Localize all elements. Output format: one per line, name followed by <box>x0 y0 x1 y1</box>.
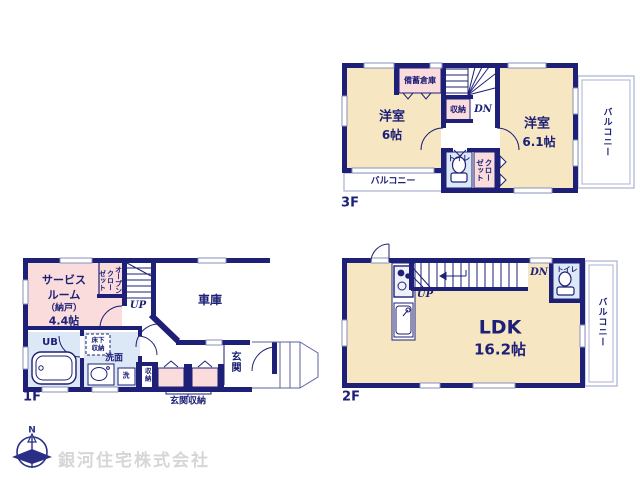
service-room-line3: （納戸） <box>46 305 82 314</box>
floor-plan-page: 洋室 6帖 洋室 6.1帖 備蓄倉庫 収納 DN トイレ クローゼット バルコニ… <box>0 0 640 480</box>
ldk-size-label: 16.2帖 <box>474 343 526 358</box>
ub-label: UB <box>42 338 58 348</box>
floor-label-3f: 3F <box>341 197 359 210</box>
toilet-label-2f: トイレ <box>557 267 578 274</box>
service-room-line1: サービス <box>42 275 86 286</box>
entry-storage-2 <box>192 368 218 387</box>
toilet-label-3f: トイレ <box>448 154 471 162</box>
senmen-label: 洗面 <box>105 355 123 364</box>
genkan-shunou-label: 玄関収納 <box>170 398 206 407</box>
ldk-name-label: LDK <box>479 319 522 338</box>
genkan-label: 玄関 <box>229 351 239 373</box>
company-watermark: 銀河住宅株式会社 <box>58 446 210 471</box>
service-room-line4: 4.4帖 <box>49 316 80 327</box>
up-label-1f: UP <box>130 301 146 311</box>
shunou-label-3f: 収納 <box>450 106 466 114</box>
bathtub-icon <box>32 352 76 384</box>
laundry-label: 洗 <box>123 373 130 380</box>
washbasin-icon <box>88 364 114 385</box>
balcony-label-2f: バルコニー <box>597 297 606 347</box>
room1-size-3f: 6帖 <box>382 129 402 141</box>
floor-label-2f: 2F <box>342 391 360 404</box>
service-room-line2: ルーム <box>48 290 81 301</box>
underfloor-line2: 収納 <box>92 345 105 352</box>
open-closet-label: オープンクローゼット <box>99 266 122 294</box>
up-label-2f: UP <box>417 290 433 300</box>
room2-size-3f: 6.1帖 <box>522 136 555 148</box>
underfloor-line1: 床下 <box>92 337 105 344</box>
dn-label-3f: DN <box>474 105 492 115</box>
shunou-label-1f: 収納 <box>144 368 151 383</box>
garage-diagonal-wall <box>151 315 178 341</box>
garage-label: 車庫 <box>198 294 222 306</box>
floor-plan-drawing <box>0 0 640 480</box>
compass-n-label: N <box>28 427 36 436</box>
dn-label-2f: DN <box>530 268 548 278</box>
stairs-1f <box>127 263 151 298</box>
entrance-steps <box>252 342 318 388</box>
room2-name-3f: 洋室 <box>524 118 550 131</box>
compass-north-icon <box>12 434 52 468</box>
kitchen-sink-icon <box>394 303 413 337</box>
balcony-bottom-label-3f: バルコニー <box>371 178 416 187</box>
balcony-right-label-3f: バルコニー <box>602 107 611 157</box>
closet-label-3f: クローゼット <box>476 159 492 182</box>
entry-storage-1 <box>158 368 184 387</box>
stairwell-2f <box>413 263 528 287</box>
room1-name-3f: 洋室 <box>379 111 405 124</box>
floor-label-1f: 1F <box>23 391 41 404</box>
bichiku-label: 備蓄倉庫 <box>404 77 436 85</box>
